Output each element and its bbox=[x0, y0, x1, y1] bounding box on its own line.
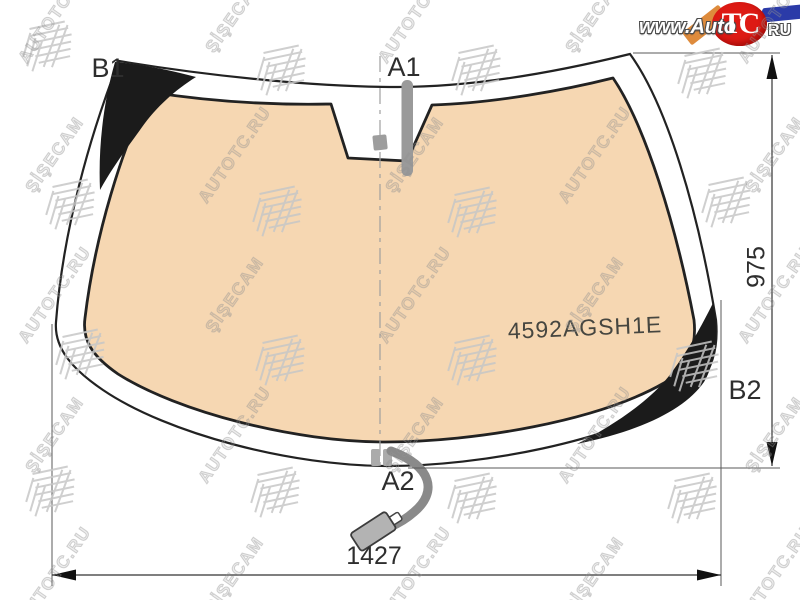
sisecam-hatch-logo bbox=[21, 466, 81, 518]
dimension-height-value: 975 bbox=[743, 246, 772, 288]
heater-terminal-left bbox=[371, 449, 380, 466]
label-a2: A2 bbox=[381, 468, 414, 495]
windshield-diagram-canvas: B1 A1 B2 A2 1427 975 4592AGSH1E www.Auto… bbox=[0, 0, 800, 600]
dimension-width-value: 1427 bbox=[346, 542, 402, 571]
sensor-strip bbox=[402, 80, 414, 176]
sisecam-hatch-logo bbox=[697, 177, 757, 229]
sisecam-hatch-logo bbox=[443, 473, 503, 525]
logo-text-suffix: RU bbox=[768, 22, 791, 40]
label-b2: B2 bbox=[728, 377, 761, 404]
site-logo: www.Auto TC RU bbox=[615, 0, 800, 58]
mirror-mount-button bbox=[372, 134, 387, 150]
sisecam-hatch-logo bbox=[663, 473, 723, 525]
dimension-line-width bbox=[52, 570, 721, 581]
label-b1: B1 bbox=[91, 55, 124, 82]
sisecam-hatch-logo bbox=[18, 21, 78, 73]
logo-text-tc: TC bbox=[712, 2, 767, 46]
sisecam-hatch-logo bbox=[246, 467, 306, 519]
windshield-drawing bbox=[0, 0, 800, 600]
label-a1: A1 bbox=[387, 54, 420, 81]
